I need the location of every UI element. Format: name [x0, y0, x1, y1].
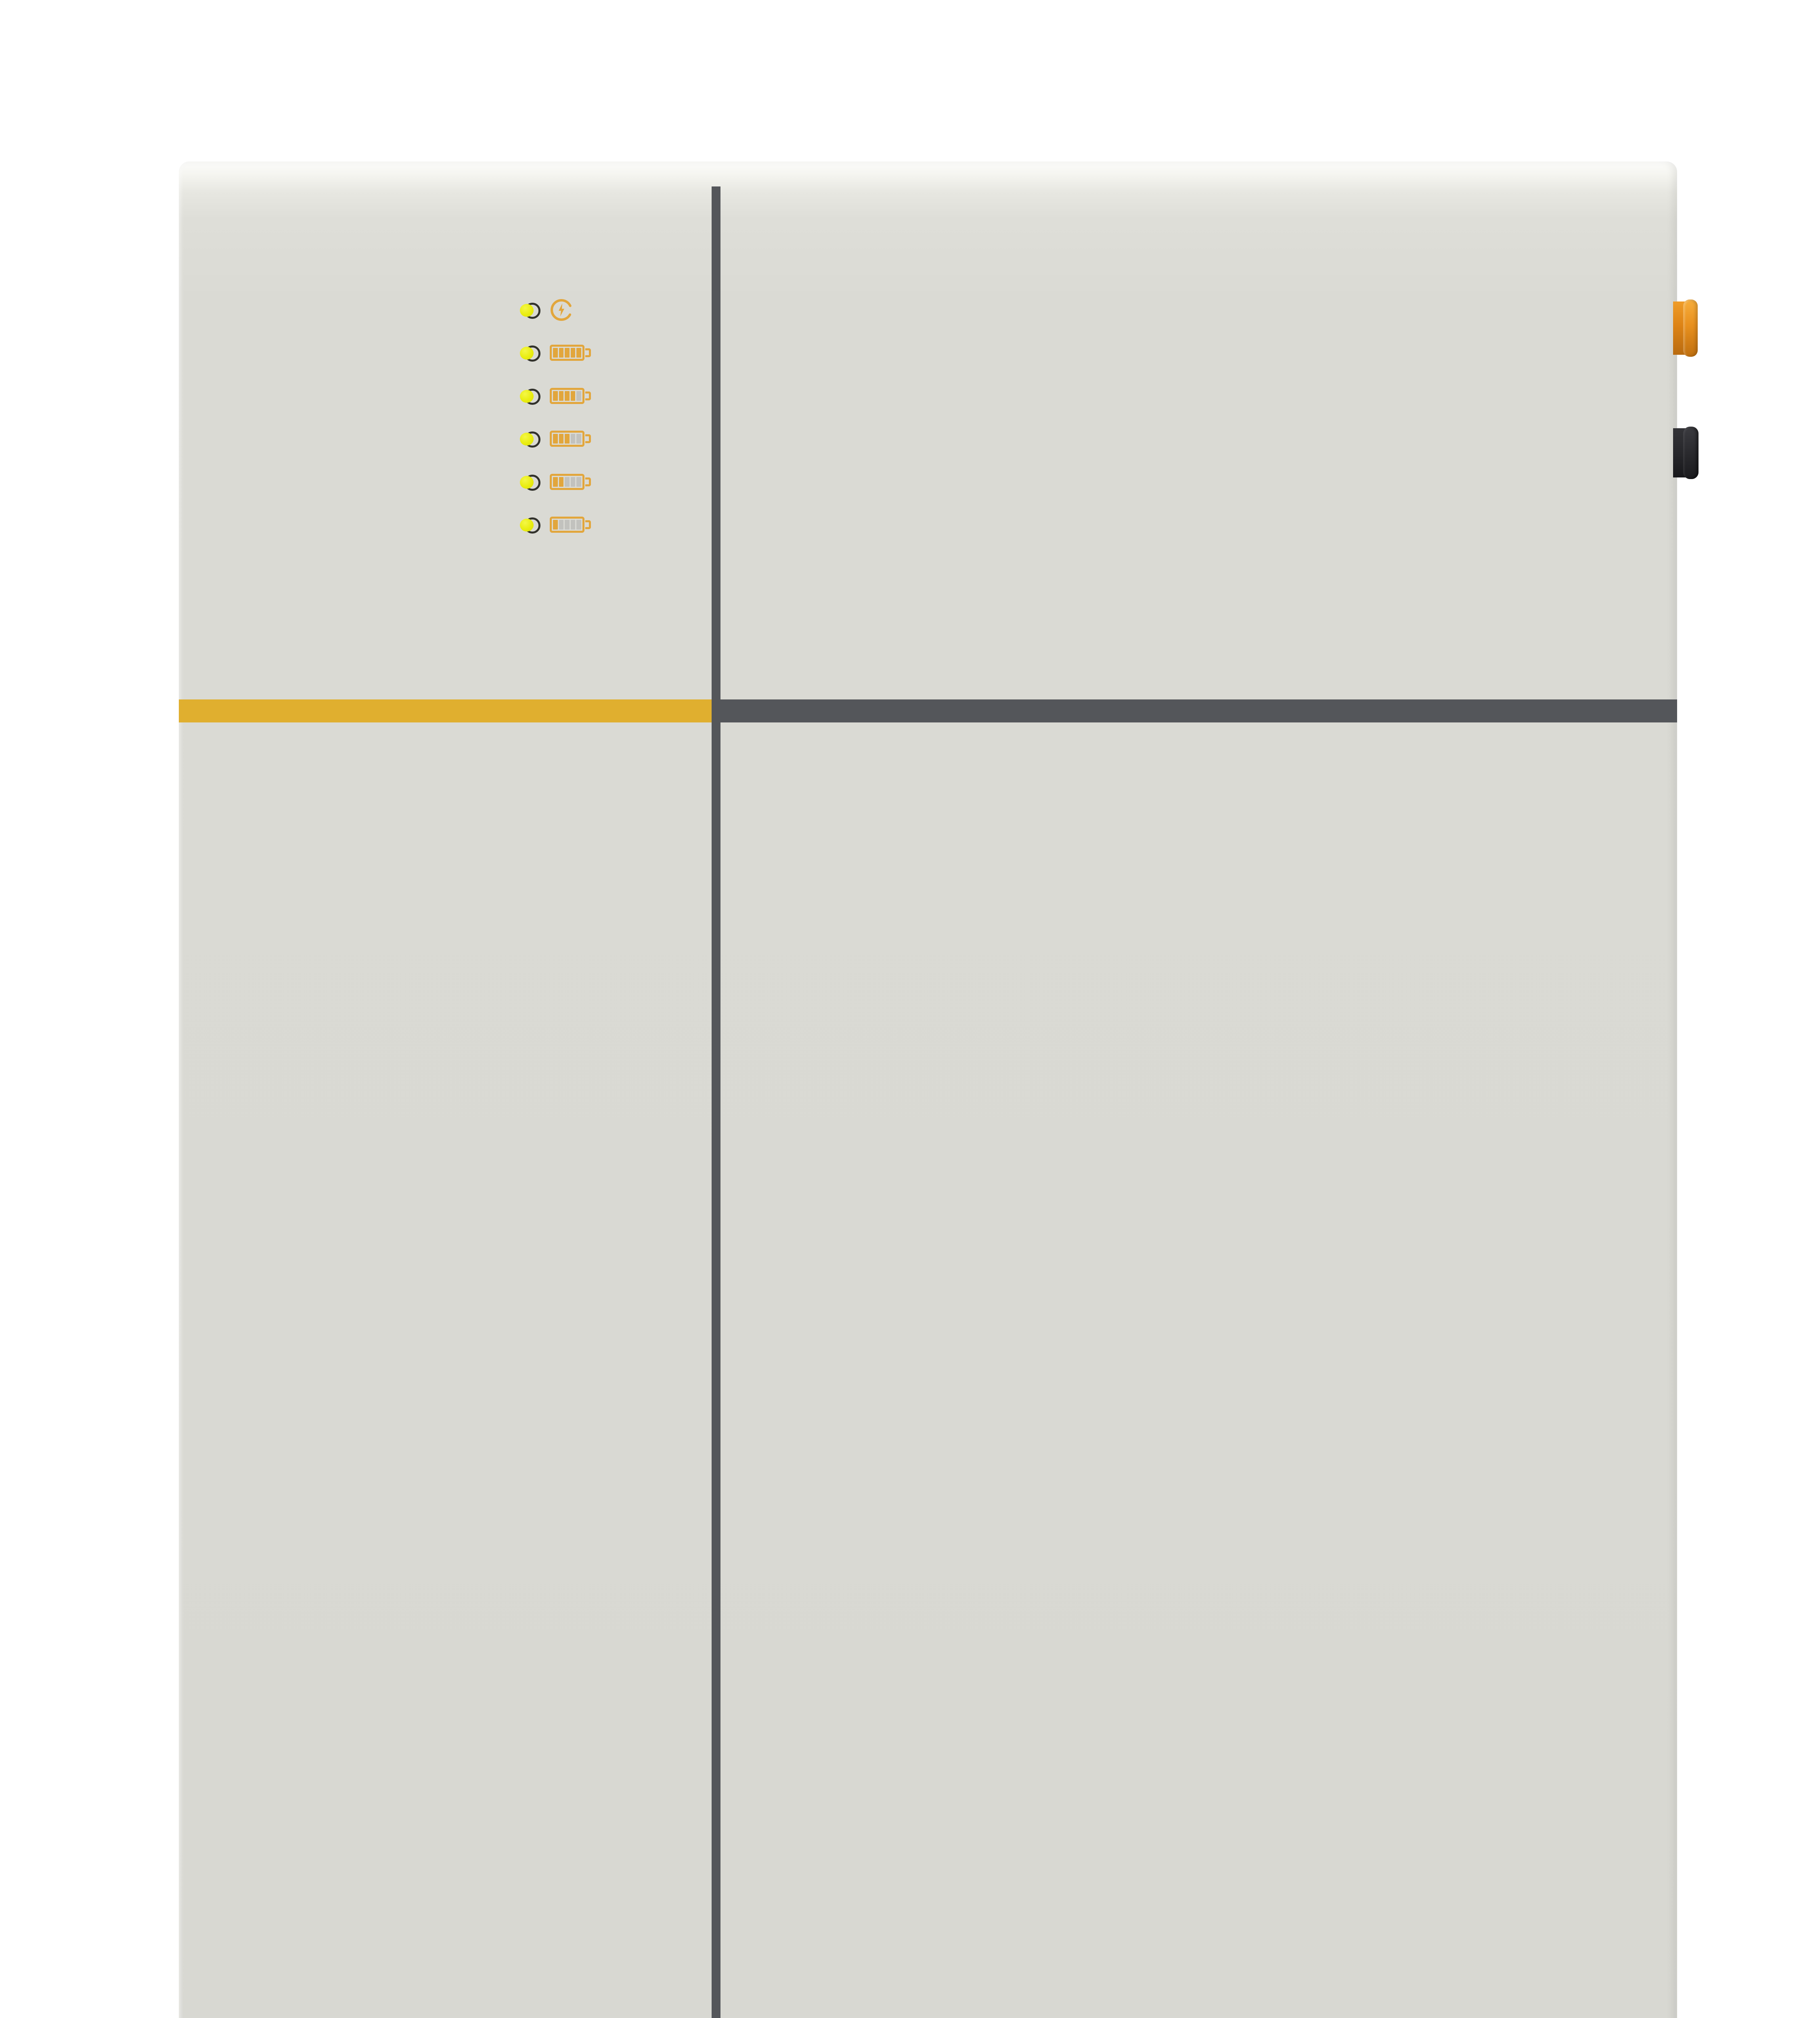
led-dot [520, 304, 534, 317]
led-dot [520, 519, 534, 532]
led-indicator [520, 474, 538, 490]
accent-stripe-yellow [179, 699, 712, 722]
black-knob-cap [1683, 427, 1699, 479]
battery-terminal-nub [585, 477, 591, 486]
orange-knob-cap [1683, 299, 1698, 357]
led-status-row [520, 513, 591, 536]
battery-level-icon [550, 474, 591, 490]
battery-terminal-nub [585, 434, 591, 443]
battery-level-icon [550, 431, 591, 447]
battery-terminal-nub [585, 391, 591, 400]
battery-terminal-nub [585, 520, 591, 529]
led-status-row [520, 384, 591, 408]
orange-side-knob [1673, 299, 1699, 357]
led-indicator [520, 431, 538, 446]
led-dot [520, 433, 534, 446]
led-panel [179, 161, 712, 565]
charge-bolt-circle-icon [550, 298, 573, 322]
led-indicator [520, 517, 538, 532]
product-render: TRIPLE POWER [0, 0, 1820, 2018]
led-dot [520, 390, 534, 403]
led-indicator [520, 345, 538, 360]
battery-level-icon [550, 388, 591, 404]
battery-level-icon [550, 345, 591, 361]
battery-cabinet: TRIPLE POWER [179, 161, 1677, 2018]
led-status-row [520, 470, 591, 494]
battery-level-icon [550, 517, 591, 533]
led-indicator [520, 388, 538, 404]
battery-terminal-nub [585, 348, 591, 357]
led-status-row [520, 298, 573, 322]
accent-stripe-gray [720, 699, 1677, 722]
led-dot [520, 476, 534, 489]
panel-divider-vertical [712, 186, 720, 2018]
led-status-row [520, 427, 591, 450]
black-side-knob [1673, 427, 1700, 479]
led-indicator [520, 302, 538, 318]
led-status-row [520, 341, 591, 364]
